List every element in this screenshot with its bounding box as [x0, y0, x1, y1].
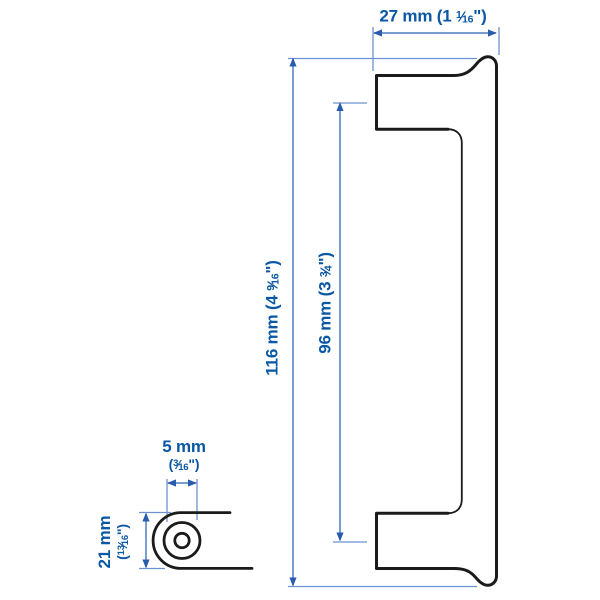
depth-fraction-denominator: 16 — [120, 535, 131, 545]
hole-diameter-inch-suffix: ") — [188, 456, 199, 472]
hole-diameter-fraction-denominator: 16 — [178, 462, 188, 473]
screw-hole-outer-circle — [164, 523, 200, 559]
handle-profile-drawing — [377, 57, 497, 586]
depth-inch-suffix: ") — [114, 524, 130, 535]
width-fraction-denominator: 16 — [462, 13, 473, 25]
dimension-diagram: 27 mm (1 1⁄16") 116 mm (4 9⁄16") 96 mm (… — [0, 0, 600, 600]
height-inch-suffix: ") — [263, 260, 282, 273]
width-inch-prefix: (1 — [432, 7, 456, 26]
dim-label-hole-diameter: 5 mm (3⁄16") — [162, 437, 206, 473]
arrowhead-down — [336, 533, 343, 542]
detail-outline — [153, 513, 252, 569]
arrowhead-right — [188, 479, 197, 486]
depth-mm-line: 21 mm — [95, 516, 114, 569]
arrowhead-left — [373, 29, 382, 36]
depth-mm-text: 21 mm — [95, 516, 114, 569]
cross-section-detail-drawing — [153, 513, 252, 569]
height-fraction-numerator: 9 — [265, 285, 277, 291]
hole-spacing-inch-prefix: (3 — [316, 277, 335, 301]
hole-spacing-mm-text: 96 mm — [316, 301, 335, 354]
hole-spacing-fraction-denominator: 4 — [322, 266, 334, 272]
hole-diameter-mm-text: 5 mm — [162, 437, 206, 456]
height-inch-prefix: (4 — [263, 291, 282, 315]
depth-fraction-numerator: 13 — [116, 545, 127, 555]
arrowhead-down — [142, 560, 149, 569]
height-mm-text: 116 mm — [263, 315, 282, 376]
arrowhead-down — [289, 578, 296, 587]
dim-label-hole-spacing: 96 mm (3 3⁄4") — [316, 252, 337, 354]
handle-body-fill — [377, 57, 497, 586]
diagram-canvas — [0, 0, 600, 600]
screw-hole-inner-circle — [175, 533, 189, 547]
depth-inch-line: (13⁄16") — [114, 516, 131, 569]
arrowhead-left — [167, 479, 176, 486]
hole-diameter-inch-line: (3⁄16") — [162, 456, 206, 473]
width-mm-text: 27 mm — [379, 7, 432, 26]
dim-label-height: 116 mm (4 9⁄16") — [263, 260, 284, 376]
arrowhead-right — [488, 29, 497, 36]
handle-inner-outline — [448, 129, 462, 513]
width-inch-suffix: ") — [473, 7, 486, 26]
height-fraction-denominator: 16 — [269, 274, 281, 285]
hole-spacing-inch-suffix: ") — [316, 252, 335, 265]
dim-label-width: 27 mm (1 1⁄16") — [379, 7, 486, 28]
arrowhead-up — [142, 513, 149, 522]
depth-inch-prefix: ( — [114, 555, 130, 559]
hole-diameter-mm-line: 5 mm — [162, 437, 206, 456]
dim-label-depth: 21 mm (13⁄16") — [95, 516, 131, 569]
